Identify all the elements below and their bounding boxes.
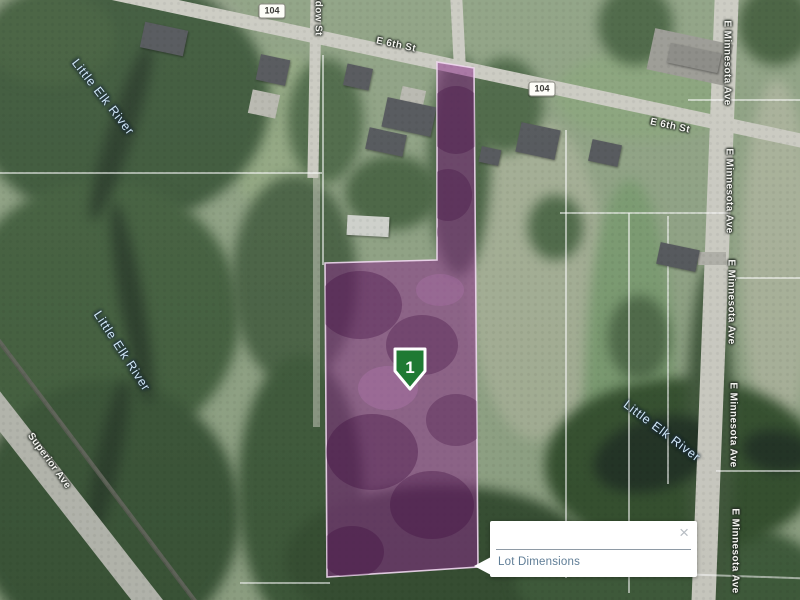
road-label-e-minnesota-ave: E Minnesota Ave: [728, 382, 739, 467]
route-104-shield: 104: [258, 4, 285, 19]
road-label-e-minnesota-ave: E Minnesota Ave: [722, 20, 733, 105]
road-label-e-minnesota-ave: E Minnesota Ave: [724, 148, 735, 233]
popup-pointer-arrow: [474, 557, 491, 575]
route-104-shield: 104: [528, 82, 555, 97]
highlighted-lot-polygon[interactable]: [0, 0, 800, 600]
lot-dimensions-popup: × Lot Dimensions: [490, 521, 697, 577]
popup-divider: [496, 549, 691, 550]
close-icon[interactable]: ×: [679, 523, 689, 543]
popup-title-lot-dimensions[interactable]: Lot Dimensions: [498, 556, 580, 568]
satellite-map-canvas[interactable]: E 6th St E 6th St Meadow St E Minnesota …: [0, 0, 800, 600]
lot-marker-pin[interactable]: 1: [391, 346, 429, 394]
road-label-e-minnesota-ave: E Minnesota Ave: [726, 259, 737, 344]
marker-number: 1: [405, 358, 414, 377]
road-label-e-minnesota-ave: E Minnesota Ave: [730, 508, 741, 593]
road-label-meadow-st: Meadow St: [313, 0, 324, 36]
